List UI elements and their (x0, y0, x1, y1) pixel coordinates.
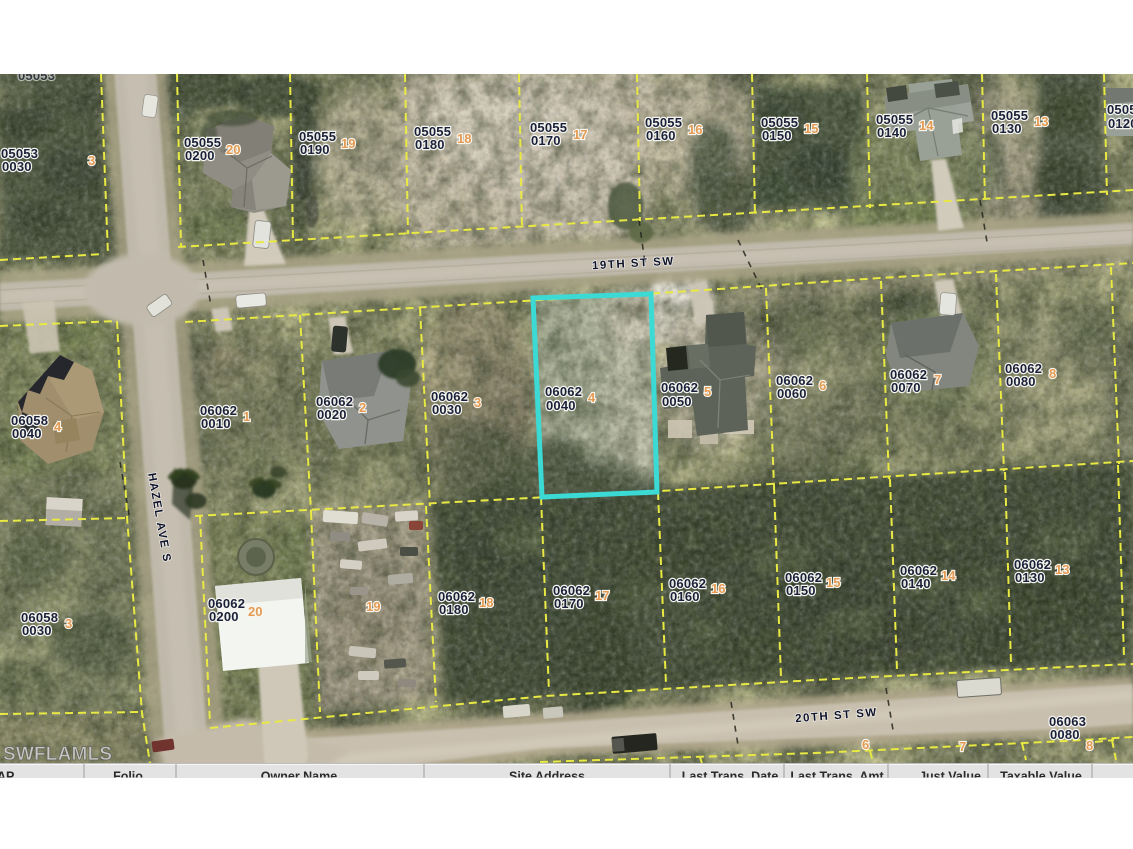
svg-text:3: 3 (88, 153, 95, 168)
svg-text:0120: 0120 (1108, 116, 1133, 131)
svg-text:20: 20 (248, 604, 262, 619)
svg-text:0160: 0160 (646, 128, 676, 143)
svg-text:4: 4 (54, 419, 62, 434)
svg-text:19: 19 (366, 599, 380, 614)
svg-text:0040: 0040 (12, 426, 42, 441)
svg-text:0180: 0180 (439, 602, 469, 617)
svg-text:17: 17 (595, 588, 609, 603)
svg-text:6: 6 (862, 737, 869, 752)
svg-text:19: 19 (341, 136, 355, 151)
svg-text:0140: 0140 (877, 125, 907, 140)
svg-text:14: 14 (941, 568, 956, 583)
svg-text:0150: 0150 (762, 128, 792, 143)
svg-text:0050: 0050 (662, 394, 692, 409)
svg-text:0130: 0130 (1015, 570, 1045, 585)
svg-text:SWFLAMLS: SWFLAMLS (3, 744, 112, 765)
svg-text:8: 8 (1049, 366, 1056, 381)
svg-text:15: 15 (826, 575, 840, 590)
svg-text:1: 1 (243, 409, 250, 424)
svg-text:0030: 0030 (2, 159, 32, 174)
svg-text:0150: 0150 (786, 583, 816, 598)
svg-text:18: 18 (479, 595, 493, 610)
svg-text:2: 2 (359, 400, 366, 415)
svg-text:0060: 0060 (777, 386, 807, 401)
svg-text:7: 7 (959, 739, 966, 754)
svg-text:0080: 0080 (1006, 374, 1036, 389)
svg-text:0130: 0130 (992, 121, 1022, 136)
svg-text:0040: 0040 (546, 398, 576, 413)
svg-text:0140: 0140 (901, 576, 931, 591)
svg-text:3: 3 (474, 395, 481, 410)
svg-text:0170: 0170 (531, 133, 561, 148)
svg-text:0190: 0190 (300, 142, 330, 157)
svg-text:06062: 06062 (545, 384, 582, 399)
svg-text:16: 16 (711, 581, 725, 596)
svg-text:0160: 0160 (670, 589, 700, 604)
svg-text:20: 20 (226, 142, 240, 157)
svg-text:13: 13 (1055, 562, 1069, 577)
svg-text:5: 5 (704, 384, 711, 399)
svg-text:0020: 0020 (317, 407, 347, 422)
svg-text:0010: 0010 (201, 416, 231, 431)
svg-text:0030: 0030 (22, 623, 52, 638)
svg-text:0030: 0030 (432, 402, 462, 417)
svg-text:8: 8 (1086, 738, 1093, 753)
svg-text:17: 17 (573, 127, 587, 142)
svg-text:06062: 06062 (661, 380, 698, 395)
svg-text:7: 7 (934, 372, 941, 387)
svg-text:05055: 05055 (1107, 102, 1133, 117)
svg-text:0070: 0070 (891, 380, 921, 395)
svg-text:0080: 0080 (1050, 727, 1080, 742)
svg-text:6: 6 (819, 378, 826, 393)
svg-text:15: 15 (804, 121, 818, 136)
svg-text:0180: 0180 (415, 137, 445, 152)
svg-text:16: 16 (688, 122, 702, 137)
svg-text:13: 13 (1034, 114, 1048, 129)
svg-text:0200: 0200 (209, 609, 239, 624)
svg-text:4: 4 (588, 390, 596, 405)
svg-text:14: 14 (919, 118, 934, 133)
svg-text:18: 18 (457, 131, 471, 146)
svg-text:0200: 0200 (185, 148, 215, 163)
svg-text:3: 3 (65, 616, 72, 631)
svg-text:0170: 0170 (554, 596, 584, 611)
